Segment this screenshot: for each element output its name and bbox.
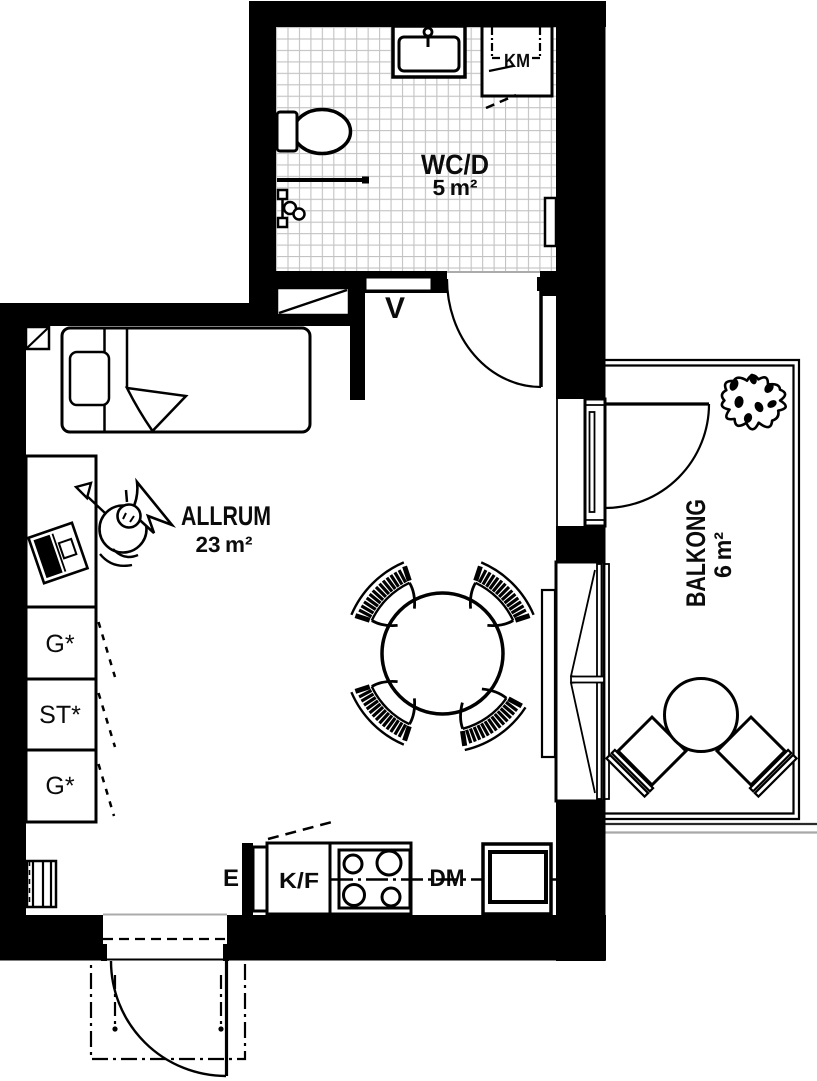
- svg-text:ALLRUM: ALLRUM: [181, 501, 271, 531]
- svg-text:ST*: ST*: [39, 701, 81, 729]
- svg-text:5 m²: 5 m²: [433, 175, 478, 200]
- svg-text:E: E: [223, 865, 239, 892]
- svg-text:6 m²: 6 m²: [710, 532, 737, 578]
- svg-text:23 m²: 23 m²: [196, 532, 253, 557]
- svg-text:G*: G*: [45, 772, 74, 800]
- svg-text:G*: G*: [45, 630, 74, 658]
- svg-text:BALKONG: BALKONG: [681, 499, 711, 607]
- svg-text:V: V: [385, 292, 405, 325]
- svg-text:KM: KM: [504, 51, 530, 72]
- svg-text:K/F: K/F: [279, 868, 319, 893]
